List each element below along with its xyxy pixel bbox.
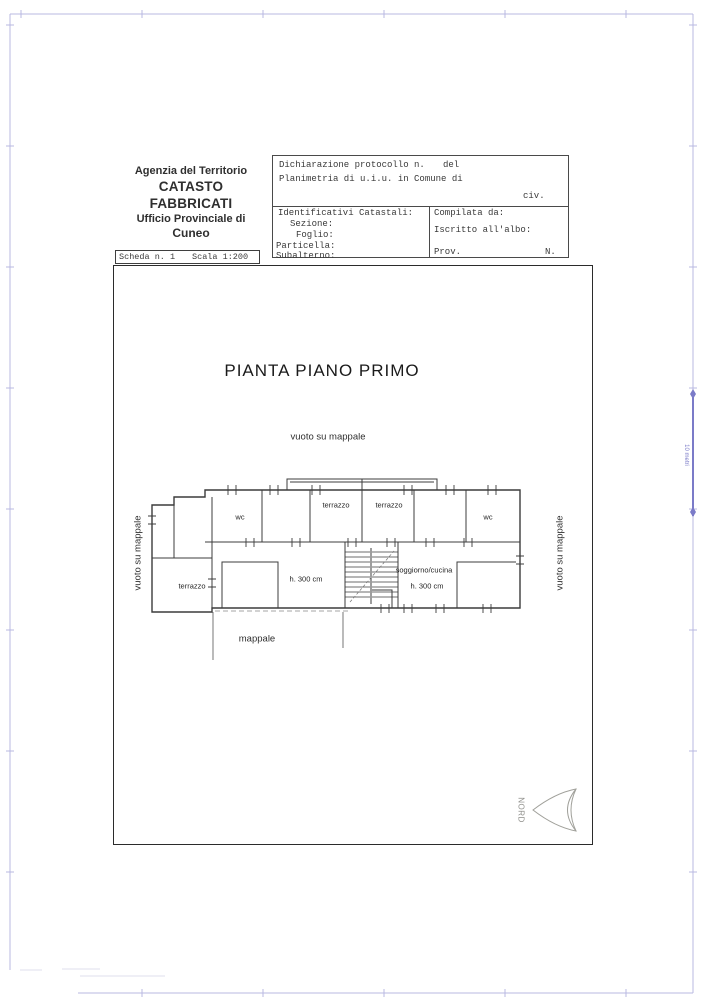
del-label: del [443, 160, 459, 170]
room-wc-right: wc [483, 513, 492, 522]
vuoto-su-mappale-top: vuoto su mappale [291, 432, 366, 443]
room-soggiorno-cucina: soggiorno/cucina [396, 566, 453, 575]
room-height-right: h. 300 cm [411, 582, 444, 591]
room-wc-left: wc [235, 513, 244, 522]
scan-artifacts [20, 969, 165, 976]
prov-label: Prov. [434, 247, 461, 257]
sezione-label: Sezione: [290, 219, 333, 229]
scheda-box: Scheda n. 1 Scala 1:200 [115, 250, 260, 264]
room-terrazzo-top-right: terrazzo [375, 501, 402, 510]
protocol-form-box: Dichiarazione protocollo n. del Planimet… [272, 155, 569, 258]
planimetria-label: Planimetria di u.i.u. in Comune di [279, 174, 463, 184]
agency-header: Agenzia del Territorio CATASTO FABBRICAT… [118, 164, 264, 241]
foglio-label: Foglio: [296, 230, 334, 240]
room-terrazzo-bottom-left: terrazzo [178, 582, 205, 591]
particella-label: Particella: [276, 241, 335, 251]
cadastral-sheet-page: { "header": { "agency_line1": "Agenzia d… [0, 0, 714, 1000]
room-height-left: h. 300 cm [290, 575, 323, 584]
vuoto-su-mappale-left: vuoto su mappale [133, 516, 144, 591]
form-divider-horizontal [273, 206, 568, 207]
compilata-label: Compilata da: [434, 208, 504, 218]
agency-line1: Agenzia del Territorio [118, 164, 264, 178]
scale-bar [690, 389, 696, 517]
dichiarazione-label: Dichiarazione protocollo n. [279, 160, 425, 170]
civ-label: civ. [523, 191, 545, 201]
mappale-label: mappale [239, 634, 275, 645]
drawing-frame [113, 265, 593, 845]
scale-bar-label: 10 metri [683, 444, 689, 466]
agency-line3: Ufficio Provinciale di [118, 212, 264, 226]
identificativi-label: Identificativi Catastali: [278, 208, 413, 218]
agency-line4: Cuneo [118, 226, 264, 241]
subalterno-label: Subalterno: [276, 251, 335, 261]
form-divider-vertical [429, 206, 430, 257]
agency-line2: CATASTO FABBRICATI [118, 178, 264, 212]
plan-title: PIANTA PIANO PRIMO [224, 361, 419, 381]
north-label: NORD [517, 797, 526, 823]
iscritto-label: Iscritto all'albo: [434, 225, 531, 235]
scheda-number: Scheda n. 1 [119, 252, 175, 262]
scala-value: Scala 1:200 [192, 252, 248, 262]
vuoto-su-mappale-right: vuoto su mappale [555, 516, 566, 591]
n-label: N. [545, 247, 556, 257]
room-terrazzo-top-left: terrazzo [322, 501, 349, 510]
